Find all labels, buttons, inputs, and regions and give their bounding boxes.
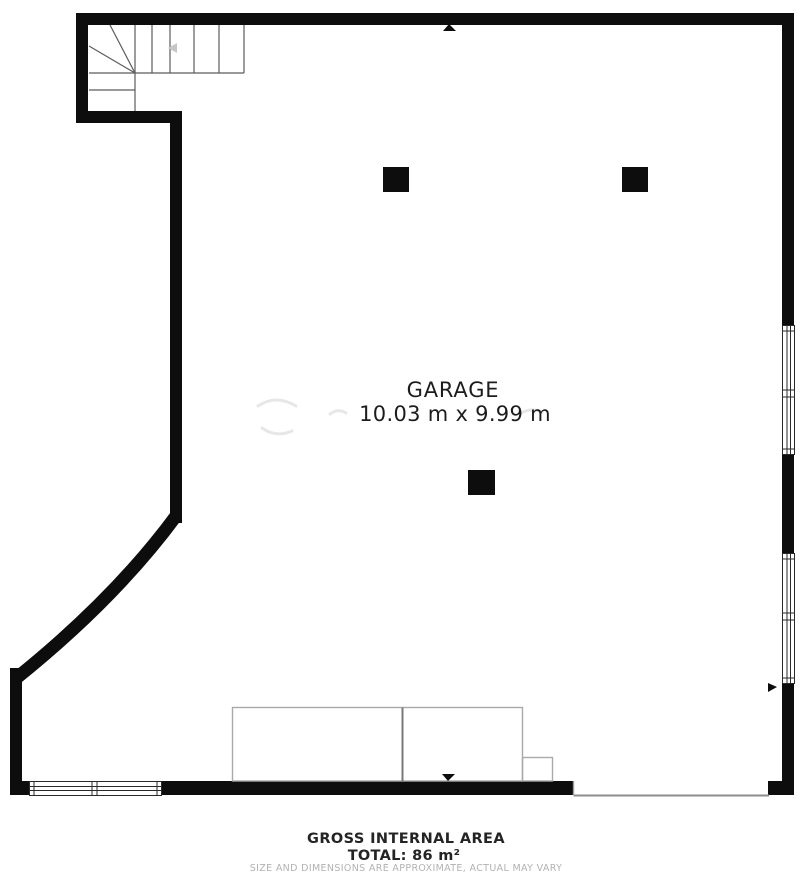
- floor-plan-drawing: [0, 0, 808, 883]
- entry-marker-bottom: [442, 774, 455, 781]
- disclaimer-text: SIZE AND DIMENSIONS ARE APPROXIMATE, ACT…: [250, 863, 563, 874]
- wall-left-curved: [14, 516, 176, 680]
- wall-right-foot: [768, 781, 794, 795]
- pillars: [383, 167, 648, 495]
- floor-plan-page: GARAGE 10.03 m x 9.99 m GROSS INTERNAL A…: [0, 0, 808, 883]
- total-area-value: TOTAL: 86 m²: [348, 848, 461, 864]
- wall-top: [76, 13, 794, 25]
- window-right-lower: [783, 554, 795, 684]
- wall-right-upper: [782, 13, 794, 326]
- pillar: [383, 167, 409, 192]
- bay-outline: [233, 708, 553, 782]
- wall-right-middle: [782, 454, 794, 554]
- window-bottom-left: [30, 782, 162, 796]
- wall-right-lower: [782, 684, 794, 795]
- wall-bottom: [161, 781, 573, 795]
- gross-internal-area-title: GROSS INTERNAL AREA: [307, 831, 505, 847]
- staircase: [89, 25, 244, 111]
- room-dimensions: 10.03 m x 9.99 m: [359, 402, 551, 426]
- pillar: [468, 470, 495, 495]
- bay-step: [523, 758, 553, 782]
- bay-rect: [233, 708, 523, 782]
- pillar: [622, 167, 648, 192]
- entry-marker-right: [768, 683, 777, 692]
- wall-left-foot: [10, 781, 30, 795]
- garage-door-opening: [574, 781, 770, 796]
- wall-left-upper: [170, 111, 182, 523]
- wall-notch-bottom: [76, 111, 181, 123]
- room-label: GARAGE: [407, 378, 500, 402]
- window-right-upper: [783, 326, 795, 455]
- wall-notch-left: [76, 13, 88, 123]
- stair-direction-arrow: [168, 43, 177, 53]
- entry-marker-top: [443, 24, 456, 31]
- wall-left-lower: [10, 668, 22, 795]
